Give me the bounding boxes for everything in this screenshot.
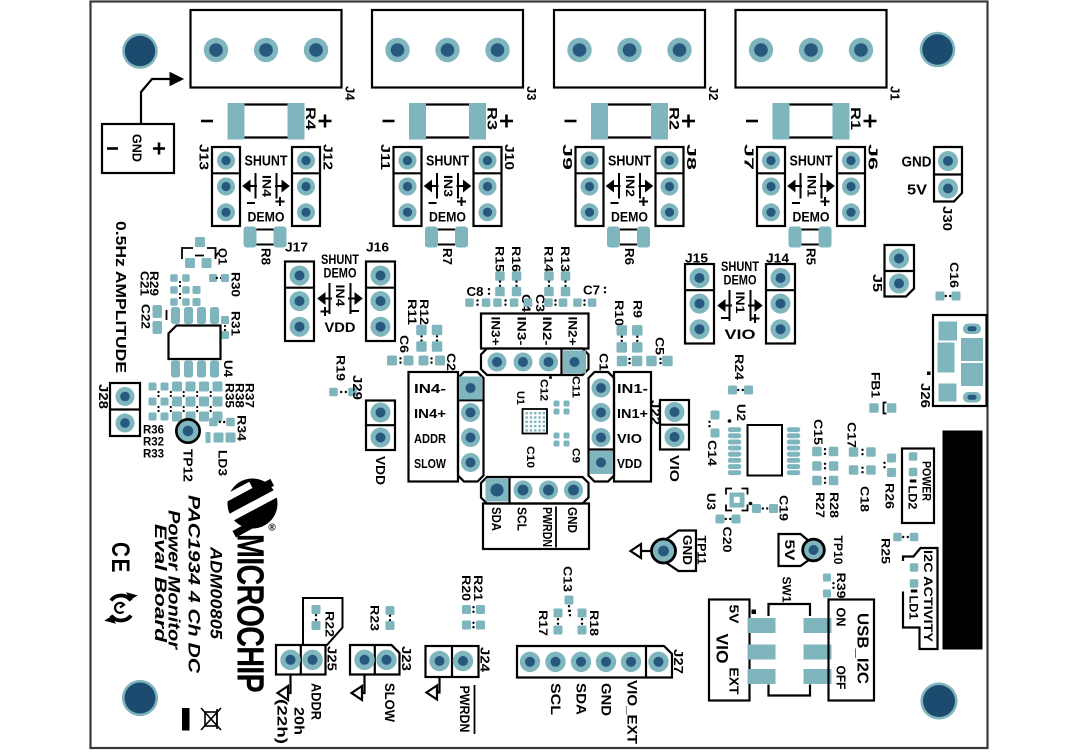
svg-text:DEMO: DEMO — [324, 265, 357, 280]
svg-text:U2: U2 — [734, 404, 748, 421]
svg-text:R31: R31 — [229, 311, 243, 336]
svg-text:EXT: EXT — [726, 668, 741, 695]
svg-text:IN1-: IN1- — [617, 381, 648, 396]
svg-text:LD3: LD3 — [216, 450, 230, 476]
svg-text:C21: C21 — [138, 271, 152, 296]
svg-text:GND: GND — [902, 153, 932, 170]
svg-text:C16: C16 — [947, 262, 961, 288]
svg-text:J7: J7 — [741, 144, 756, 170]
svg-text:®: ® — [268, 523, 276, 534]
svg-text:IN4+: IN4+ — [414, 406, 446, 421]
svg-text:J5: J5 — [870, 274, 884, 292]
svg-text:R28: R28 — [827, 492, 841, 518]
svg-text:J8: J8 — [684, 144, 699, 170]
svg-text:IN1: IN1 — [804, 175, 816, 198]
svg-text:GND: GND — [129, 134, 144, 162]
svg-text:LD1: LD1 — [907, 596, 921, 620]
svg-text:R21: R21 — [471, 575, 485, 601]
svg-text:5V: 5V — [782, 540, 798, 562]
svg-text:J23: J23 — [399, 646, 413, 671]
svg-text:R10: R10 — [612, 300, 626, 326]
svg-text:J2: J2 — [706, 86, 721, 100]
svg-text:DEMO: DEMO — [793, 209, 830, 225]
svg-text:C12: C12 — [538, 379, 550, 401]
svg-text:J9: J9 — [560, 144, 575, 170]
svg-text:PAC1934 4 Ch DC: PAC1934 4 Ch DC — [184, 495, 203, 674]
svg-text:R23: R23 — [368, 605, 382, 631]
svg-text:C17: C17 — [845, 422, 859, 448]
svg-text:VIO: VIO — [712, 634, 731, 664]
svg-text:C1: C1 — [597, 353, 611, 371]
svg-text:R2: R2 — [667, 107, 682, 130]
svg-text:VIO_EXT: VIO_EXT — [625, 680, 640, 745]
svg-text:USB_I2C: USB_I2C — [853, 613, 870, 684]
svg-text:J14: J14 — [766, 251, 790, 266]
svg-text:R26: R26 — [883, 483, 897, 509]
svg-text:VIO: VIO — [617, 431, 642, 446]
svg-text:20h: 20h — [292, 707, 307, 735]
svg-text:J25: J25 — [325, 646, 339, 671]
svg-text:R5: R5 — [803, 248, 818, 265]
svg-text:U4: U4 — [221, 360, 235, 377]
svg-text:R22: R22 — [323, 611, 337, 637]
svg-text:PWRDN: PWRDN — [540, 507, 555, 547]
svg-text:IN4-: IN4- — [414, 381, 446, 396]
svg-text:R8: R8 — [258, 248, 273, 265]
svg-text:J1: J1 — [887, 86, 902, 100]
svg-text:VDD: VDD — [617, 456, 642, 471]
svg-text:J10: J10 — [502, 144, 517, 170]
svg-text:ADM00805: ADM00805 — [206, 546, 225, 640]
svg-text:J11: J11 — [378, 144, 393, 170]
svg-text:LD2: LD2 — [906, 486, 920, 510]
svg-text:R34: R34 — [235, 415, 249, 441]
svg-text:GND: GND — [680, 535, 694, 565]
svg-text:R39: R39 — [834, 573, 848, 599]
svg-text:C7: C7 — [583, 284, 600, 298]
svg-text:J15: J15 — [685, 251, 708, 266]
svg-text:R6: R6 — [622, 248, 637, 265]
svg-text:J30: J30 — [940, 206, 954, 231]
svg-text:J28: J28 — [96, 384, 110, 409]
svg-text:SHUNT: SHUNT — [426, 154, 469, 170]
svg-text:C20: C20 — [720, 527, 734, 553]
svg-text:J27: J27 — [671, 649, 685, 674]
svg-text:VDD: VDD — [325, 320, 356, 335]
svg-text:C13: C13 — [561, 566, 575, 592]
svg-text:POWER: POWER — [920, 461, 934, 501]
svg-text:PWRDN: PWRDN — [457, 686, 472, 733]
svg-text:R27: R27 — [813, 492, 827, 518]
svg-text:VDD: VDD — [373, 456, 388, 485]
svg-text:R16: R16 — [509, 246, 523, 272]
svg-text:R4: R4 — [303, 107, 318, 131]
svg-text:C14: C14 — [705, 440, 719, 466]
svg-text:R15: R15 — [493, 246, 507, 272]
svg-text:C5: C5 — [653, 337, 667, 355]
svg-text:SHUNT: SHUNT — [245, 154, 288, 170]
svg-text:C8: C8 — [467, 285, 484, 299]
svg-text:SW1: SW1 — [780, 577, 794, 603]
svg-text:C22: C22 — [139, 304, 153, 329]
svg-text:C11: C11 — [570, 376, 582, 398]
svg-text:J17: J17 — [285, 240, 308, 255]
svg-text:R24: R24 — [732, 354, 746, 380]
svg-text:MICROCHIP: MICROCHIP — [229, 534, 271, 692]
svg-text:J12: J12 — [320, 144, 335, 170]
svg-text:GND: GND — [599, 683, 614, 716]
svg-text:CE: CE — [106, 542, 134, 574]
svg-text:C9: C9 — [570, 448, 582, 463]
svg-text:SCL: SCL — [548, 683, 563, 715]
svg-text:R9: R9 — [631, 300, 645, 318]
svg-text:J26: J26 — [918, 383, 932, 408]
svg-text:DEMO: DEMO — [429, 209, 466, 225]
svg-text:U3: U3 — [704, 493, 718, 510]
svg-text:DEMO: DEMO — [611, 209, 648, 225]
svg-text:IN2+: IN2+ — [566, 317, 580, 346]
svg-text:Q1: Q1 — [216, 248, 230, 265]
svg-text:TP11: TP11 — [695, 536, 709, 565]
svg-text:DEMO: DEMO — [248, 209, 285, 225]
svg-text:J6: J6 — [865, 144, 880, 170]
svg-text:IN3: IN3 — [441, 175, 453, 197]
svg-text:R25: R25 — [879, 538, 893, 564]
svg-text:C10: C10 — [524, 446, 536, 468]
svg-text:C19: C19 — [777, 495, 791, 521]
svg-text:TP12: TP12 — [181, 449, 195, 482]
svg-text:IN3-: IN3- — [515, 317, 529, 346]
svg-text:IN3+: IN3+ — [489, 317, 503, 346]
svg-text:IN4: IN4 — [259, 175, 271, 198]
svg-text:R30: R30 — [229, 272, 243, 297]
svg-text:R33: R33 — [143, 449, 164, 461]
svg-text:VIO: VIO — [667, 455, 682, 482]
svg-text:R14: R14 — [542, 246, 556, 272]
svg-text:OFF: OFF — [833, 666, 848, 690]
svg-text:J29: J29 — [350, 375, 364, 400]
svg-text:R7: R7 — [440, 248, 455, 265]
svg-text:J16: J16 — [366, 240, 389, 255]
svg-text:IN2: IN2 — [623, 175, 635, 197]
svg-text:I2C ACTIVITY: I2C ACTIVITY — [921, 550, 935, 642]
svg-text:IN1: IN1 — [733, 292, 745, 315]
svg-text:0.5Hz AMPLITUDE: 0.5Hz AMPLITUDE — [112, 221, 128, 373]
svg-text:U1: U1 — [514, 391, 526, 405]
svg-text:5V: 5V — [726, 605, 741, 624]
svg-text:R1: R1 — [848, 107, 863, 131]
svg-text:FB1: FB1 — [869, 372, 883, 398]
svg-text:Eval Board: Eval Board — [151, 524, 170, 643]
svg-text:5V: 5V — [907, 181, 927, 198]
svg-text:R13: R13 — [558, 246, 572, 272]
svg-text:J13: J13 — [196, 144, 211, 170]
svg-text:GND: GND — [565, 507, 580, 533]
svg-text:DEMO: DEMO — [724, 272, 757, 287]
svg-text:R18: R18 — [587, 610, 601, 636]
svg-text:IN4: IN4 — [333, 285, 345, 308]
svg-text:SHUNT: SHUNT — [790, 154, 833, 170]
svg-text:R37: R37 — [243, 383, 257, 408]
svg-text:R17: R17 — [536, 610, 550, 636]
svg-text:TP10: TP10 — [831, 536, 845, 565]
svg-text:C15: C15 — [811, 419, 825, 445]
svg-text:SHUNT: SHUNT — [608, 154, 651, 170]
svg-text:SLOW: SLOW — [414, 456, 447, 471]
svg-text:SLOW: SLOW — [382, 683, 397, 722]
svg-text:ADDR: ADDR — [309, 683, 324, 720]
svg-text:R32: R32 — [143, 437, 164, 449]
svg-text:J3: J3 — [524, 86, 539, 100]
svg-text:C18: C18 — [858, 486, 872, 512]
svg-text:VIO: VIO — [725, 327, 756, 342]
svg-text:R11: R11 — [405, 299, 419, 325]
svg-text:C6: C6 — [397, 335, 411, 353]
svg-text:R36: R36 — [143, 425, 164, 437]
svg-text:J22: J22 — [648, 400, 662, 425]
svg-text:SCL: SCL — [514, 507, 529, 531]
svg-text:J24: J24 — [478, 647, 492, 672]
svg-text:ADDR: ADDR — [414, 431, 447, 446]
svg-text:IN1+: IN1+ — [617, 406, 648, 421]
svg-text:J4: J4 — [342, 86, 357, 101]
svg-text:(22h): (22h) — [275, 699, 290, 744]
svg-text:SDA: SDA — [574, 683, 589, 715]
svg-text:R3: R3 — [485, 107, 500, 131]
svg-text:C2: C2 — [444, 353, 458, 371]
svg-text:R20: R20 — [459, 575, 473, 601]
svg-text:R19: R19 — [334, 355, 348, 381]
svg-text:ON: ON — [833, 608, 848, 627]
svg-text:SDA: SDA — [489, 507, 504, 532]
svg-text:IN2-: IN2- — [540, 317, 554, 346]
